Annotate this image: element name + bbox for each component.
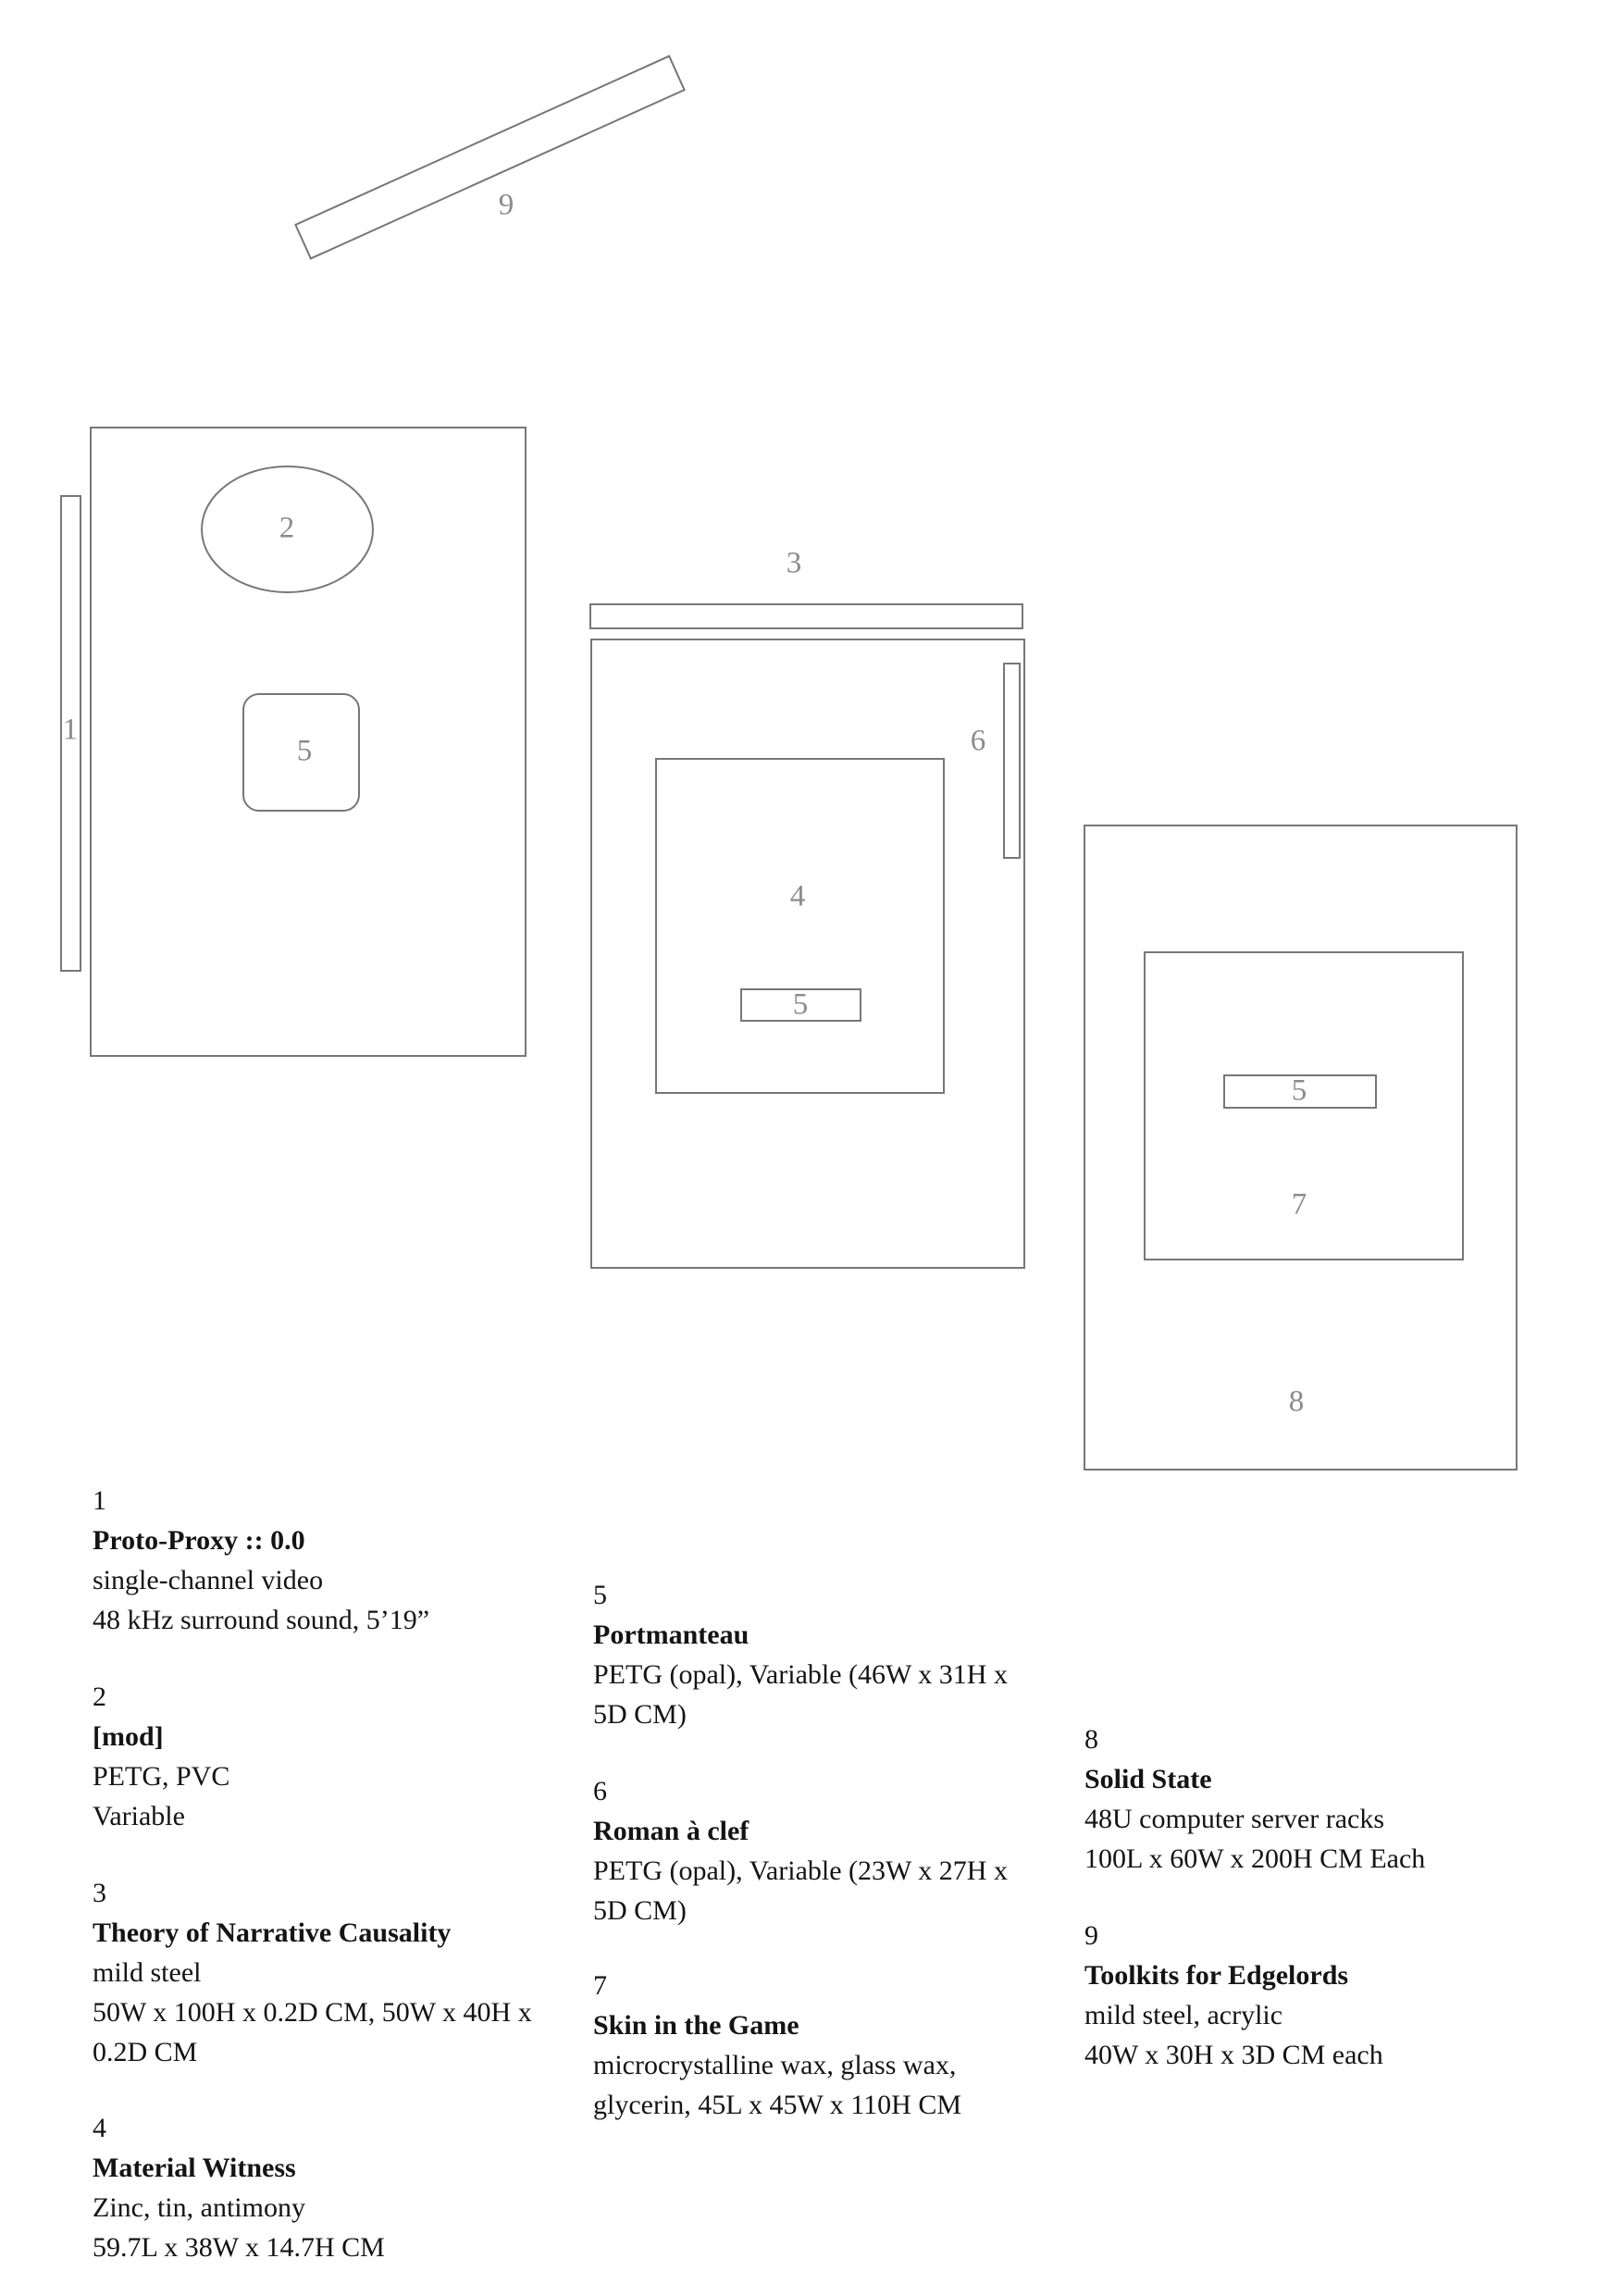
plan-marker-5-right: 5	[1292, 1076, 1307, 1107]
plan-marker-4: 4	[790, 882, 806, 912]
legend-number: 7	[593, 1966, 961, 2005]
legend-number: 8	[1084, 1719, 1425, 1759]
artwork-detail: 100L x 60W x 200H CM Each	[1084, 1839, 1425, 1879]
material-witness-outline	[655, 758, 945, 1094]
artwork-detail: 48 kHz surround sound, 5’19”	[93, 1600, 429, 1640]
legend-entry-7: 7 Skin in the Game microcrystalline wax,…	[593, 1966, 961, 2125]
artwork-detail: PETG (opal), Variable (46W x 31H x	[593, 1655, 1008, 1694]
plan-marker-5-left: 5	[297, 737, 313, 767]
plan-marker-6: 6	[971, 726, 986, 757]
artwork-title: Solid State	[1084, 1759, 1425, 1799]
plan-marker-5-mid: 5	[793, 990, 809, 1021]
toolkits-bar-outline	[294, 55, 686, 259]
legend-entry-2: 2 [mod] PETG, PVC Variable	[93, 1677, 229, 1836]
artwork-detail: 5D CM)	[593, 1891, 1008, 1930]
artwork-title: Skin in the Game	[593, 2005, 961, 2045]
artwork-detail: mild steel, acrylic	[1084, 1995, 1383, 2035]
plan-marker-3: 3	[787, 549, 802, 579]
artwork-detail: single-channel video	[93, 1560, 429, 1600]
artwork-title: Roman à clef	[593, 1811, 1008, 1851]
plan-marker-9: 9	[499, 191, 514, 221]
legend-number: 9	[1084, 1916, 1383, 1955]
legend-number: 3	[93, 1873, 532, 1913]
artwork-title: Portmanteau	[593, 1615, 1008, 1655]
legend-number: 4	[93, 2108, 385, 2148]
artwork-detail: 50W x 100H x 0.2D CM, 50W x 40H x	[93, 1992, 532, 2032]
artwork-detail: microcrystalline wax, glass wax,	[593, 2045, 961, 2085]
roman-a-clef-bar-outline	[1003, 663, 1021, 859]
legend-entry-9: 9 Toolkits for Edgelords mild steel, acr…	[1084, 1916, 1383, 2075]
legend-number: 6	[593, 1771, 1008, 1811]
theory-bar-outline	[589, 603, 1023, 629]
artwork-detail: 0.2D CM	[93, 2032, 532, 2072]
artwork-detail: glycerin, 45L x 45W x 110H CM	[593, 2085, 961, 2125]
plan-marker-2: 2	[279, 514, 295, 544]
artwork-detail: 5D CM)	[593, 1694, 1008, 1734]
artwork-title: Proto-Proxy :: 0.0	[93, 1520, 429, 1560]
legend-entry-5: 5 Portmanteau PETG (opal), Variable (46W…	[593, 1575, 1008, 1734]
artwork-detail: mild steel	[93, 1953, 532, 1992]
plan-marker-1: 1	[63, 715, 79, 746]
artwork-title: Theory of Narrative Causality	[93, 1913, 532, 1953]
artwork-detail: 59.7L x 38W x 14.7H CM	[93, 2228, 385, 2267]
plan-marker-7: 7	[1292, 1190, 1307, 1221]
artwork-title: Material Witness	[93, 2148, 385, 2188]
legend-number: 1	[93, 1481, 429, 1520]
legend-entry-8: 8 Solid State 48U computer server racks …	[1084, 1719, 1425, 1879]
legend-number: 5	[593, 1575, 1008, 1615]
artwork-detail: 40W x 30H x 3D CM each	[1084, 2035, 1383, 2075]
legend-number: 2	[93, 1677, 229, 1717]
legend-entry-1: 1 Proto-Proxy :: 0.0 single-channel vide…	[93, 1481, 429, 1640]
legend-entry-4: 4 Material Witness Zinc, tin, antimony 5…	[93, 2108, 385, 2267]
legend-entry-6: 6 Roman à clef PETG (opal), Variable (23…	[593, 1771, 1008, 1930]
artwork-title: [mod]	[93, 1717, 229, 1756]
plan-marker-8: 8	[1289, 1387, 1305, 1418]
artwork-detail: PETG (opal), Variable (23W x 27H x	[593, 1851, 1008, 1891]
artwork-detail: Variable	[93, 1796, 229, 1836]
artwork-title: Toolkits for Edgelords	[1084, 1955, 1383, 1995]
artwork-detail: Zinc, tin, antimony	[93, 2188, 385, 2228]
artwork-detail: 48U computer server racks	[1084, 1799, 1425, 1839]
artwork-detail: PETG, PVC	[93, 1756, 229, 1796]
legend-entry-3: 3 Theory of Narrative Causality mild ste…	[93, 1873, 532, 2072]
